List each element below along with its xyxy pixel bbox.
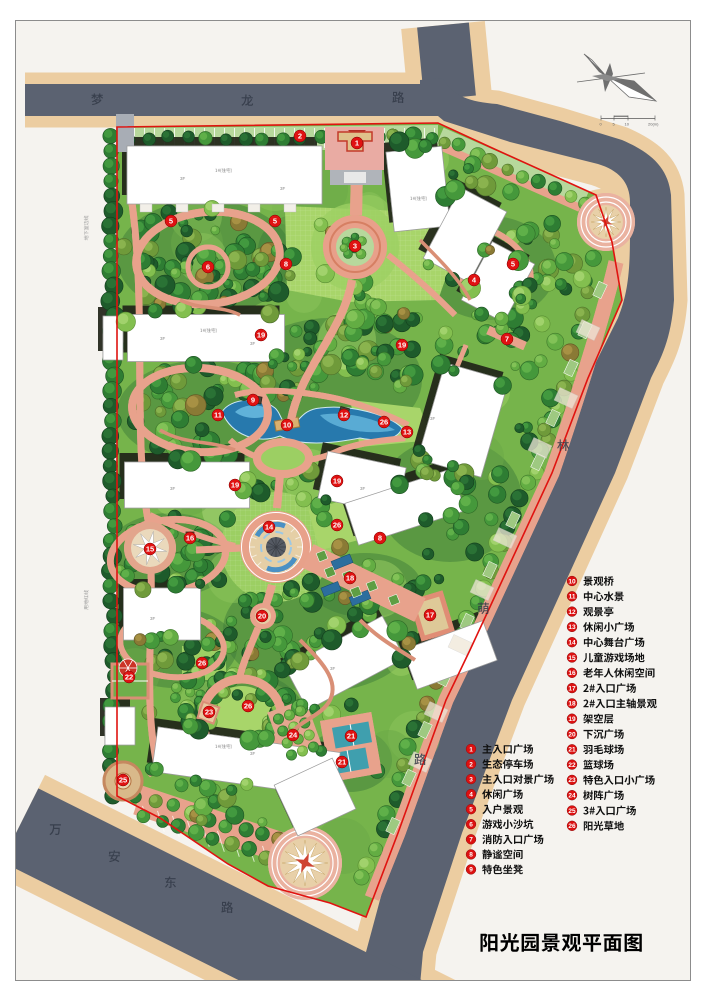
svg-text:3: 3 [353, 242, 357, 251]
svg-text:7: 7 [505, 335, 509, 344]
svg-text:8: 8 [469, 852, 473, 859]
svg-text:13: 13 [568, 624, 576, 631]
svg-text:19: 19 [231, 481, 239, 490]
svg-text:8: 8 [284, 260, 288, 269]
svg-text:20(m): 20(m) [648, 122, 659, 127]
svg-text:3F: 3F [170, 486, 176, 491]
svg-text:22: 22 [568, 762, 576, 769]
svg-text:12: 12 [568, 609, 576, 616]
svg-text:3F: 3F [160, 336, 166, 341]
svg-text:5: 5 [273, 217, 277, 226]
svg-text:16: 16 [186, 534, 194, 543]
svg-text:19: 19 [398, 341, 406, 350]
svg-text:10: 10 [283, 421, 291, 430]
svg-text:26: 26 [244, 702, 252, 711]
svg-text:3: 3 [469, 776, 473, 783]
svg-text:25: 25 [119, 776, 127, 785]
svg-text:21: 21 [568, 747, 576, 754]
svg-text:4: 4 [469, 791, 473, 798]
svg-text:2: 2 [469, 761, 473, 768]
svg-text:8: 8 [378, 534, 382, 543]
svg-text:11: 11 [214, 411, 222, 420]
svg-text:24: 24 [289, 731, 298, 740]
svg-text:1: 1 [469, 746, 473, 753]
svg-text:22: 22 [125, 673, 133, 682]
svg-text:26: 26 [568, 823, 576, 830]
svg-text:16: 16 [568, 670, 576, 677]
svg-text:19: 19 [257, 331, 265, 340]
svg-text:19: 19 [333, 477, 341, 486]
svg-text:6: 6 [469, 822, 473, 829]
svg-text:14: 14 [568, 640, 576, 647]
svg-text:9: 9 [251, 396, 255, 405]
svg-text:10: 10 [625, 122, 630, 127]
svg-text:18: 18 [346, 574, 354, 583]
svg-text:5: 5 [511, 260, 515, 269]
svg-text:26: 26 [198, 659, 206, 668]
svg-text:13: 13 [403, 428, 411, 437]
svg-text:26: 26 [380, 418, 388, 427]
svg-text:21: 21 [347, 732, 355, 741]
svg-text:3F: 3F [430, 416, 436, 421]
svg-text:3F: 3F [150, 616, 156, 621]
svg-text:10: 10 [568, 578, 576, 585]
svg-text:6: 6 [206, 263, 210, 272]
svg-text:12: 12 [340, 411, 348, 420]
svg-text:7: 7 [469, 837, 473, 844]
svg-text:24: 24 [568, 793, 576, 800]
svg-text:25: 25 [568, 808, 576, 815]
svg-text:19: 19 [568, 716, 576, 723]
svg-text:14: 14 [265, 523, 274, 532]
svg-text:11: 11 [569, 594, 576, 601]
svg-text:5: 5 [469, 807, 473, 814]
svg-text:15: 15 [146, 545, 154, 554]
svg-text:26: 26 [333, 521, 341, 530]
svg-text:23: 23 [568, 777, 576, 784]
svg-text:3F: 3F [250, 341, 256, 346]
svg-text:20: 20 [568, 731, 576, 738]
svg-text:3F: 3F [250, 751, 256, 756]
svg-text:18: 18 [568, 701, 576, 708]
svg-text:23: 23 [205, 708, 213, 717]
svg-text:3F: 3F [180, 176, 186, 181]
svg-text:3F: 3F [280, 186, 286, 191]
svg-text:17: 17 [426, 611, 434, 620]
svg-text:5: 5 [169, 217, 173, 226]
svg-text:3F: 3F [360, 486, 366, 491]
svg-text:20: 20 [258, 612, 266, 621]
svg-text:21: 21 [338, 758, 346, 767]
svg-text:15: 15 [568, 655, 576, 662]
svg-text:3F: 3F [330, 666, 336, 671]
svg-text:9: 9 [469, 867, 473, 874]
svg-text:2: 2 [298, 132, 302, 141]
svg-text:1: 1 [355, 139, 359, 148]
svg-text:17: 17 [568, 685, 576, 692]
